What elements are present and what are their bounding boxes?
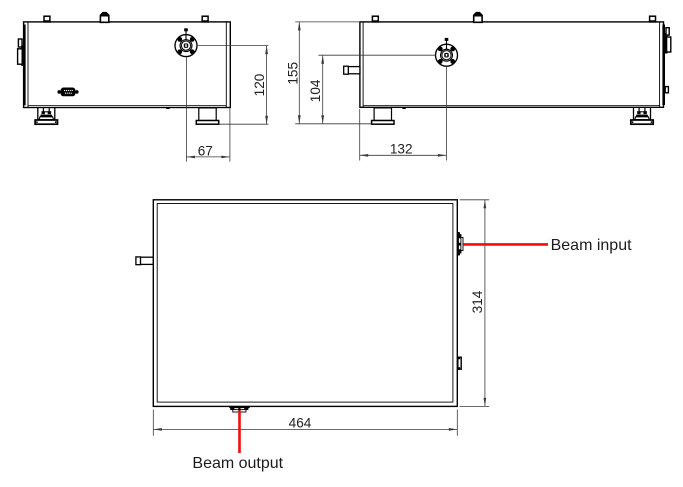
svg-text:104: 104 bbox=[308, 79, 323, 102]
svg-text:132: 132 bbox=[390, 142, 413, 157]
svg-text:Beam output: Beam output bbox=[192, 455, 283, 472]
svg-text:155: 155 bbox=[285, 62, 300, 85]
svg-text:67: 67 bbox=[198, 144, 213, 159]
svg-text:464: 464 bbox=[289, 415, 312, 430]
svg-text:120: 120 bbox=[252, 73, 267, 96]
svg-text:314: 314 bbox=[470, 290, 485, 313]
svg-text:Beam input: Beam input bbox=[551, 237, 632, 254]
